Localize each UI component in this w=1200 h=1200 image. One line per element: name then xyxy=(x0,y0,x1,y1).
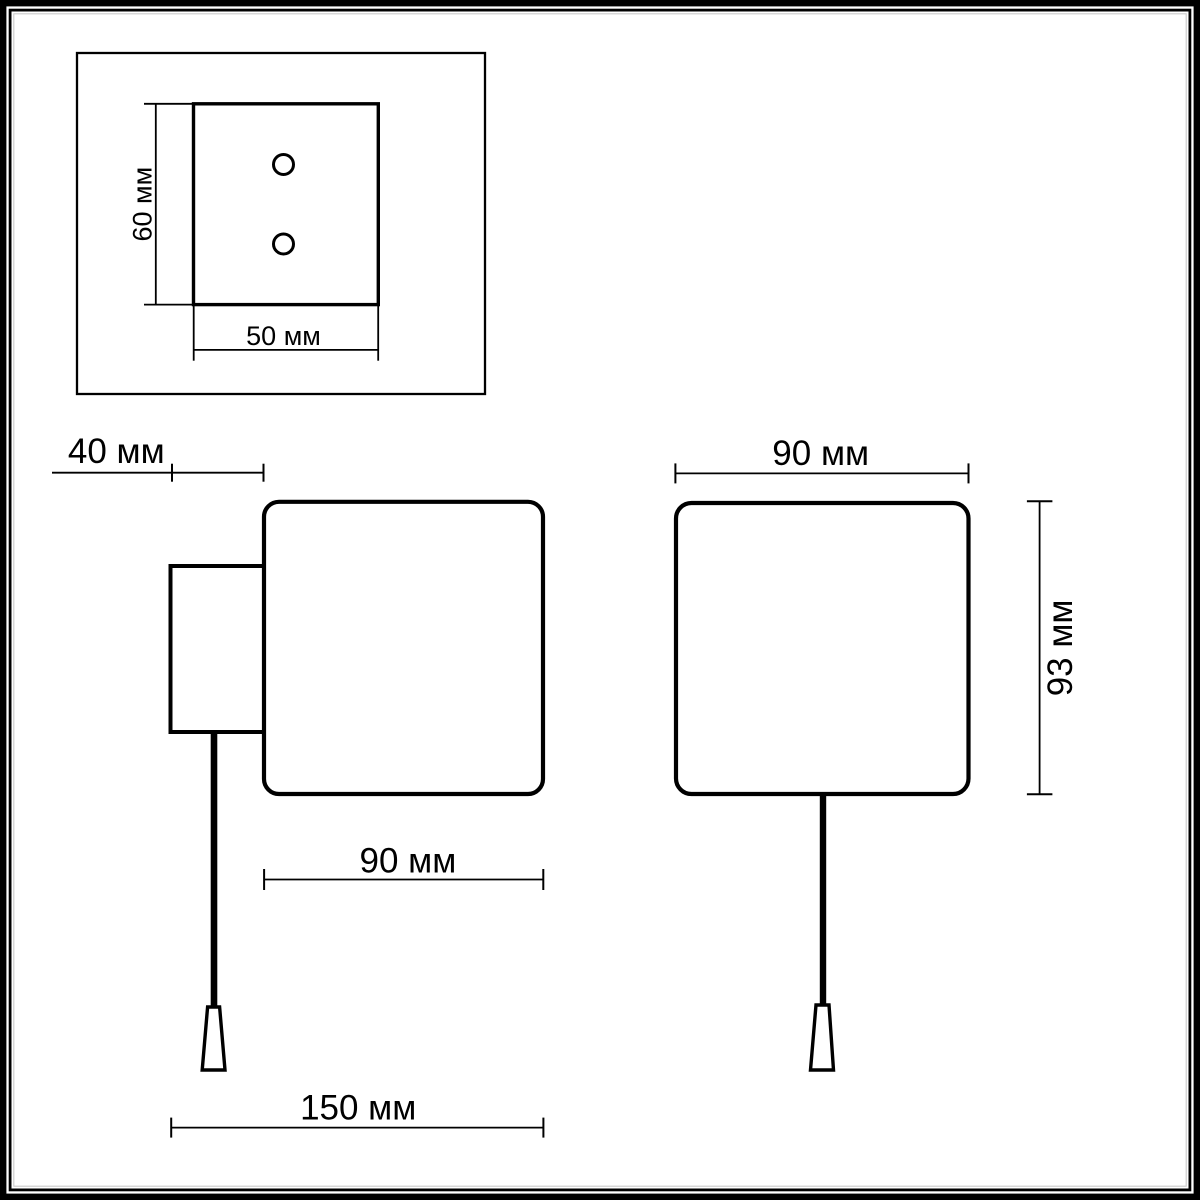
svg-text:60 мм: 60 мм xyxy=(128,167,158,242)
svg-text:90 мм: 90 мм xyxy=(360,841,457,880)
svg-text:93 мм: 93 мм xyxy=(1041,600,1080,697)
svg-text:50 мм: 50 мм xyxy=(246,321,321,351)
svg-text:150 мм: 150 мм xyxy=(300,1088,416,1127)
svg-text:40 мм: 40 мм xyxy=(68,432,165,471)
svg-text:90 мм: 90 мм xyxy=(772,434,869,473)
